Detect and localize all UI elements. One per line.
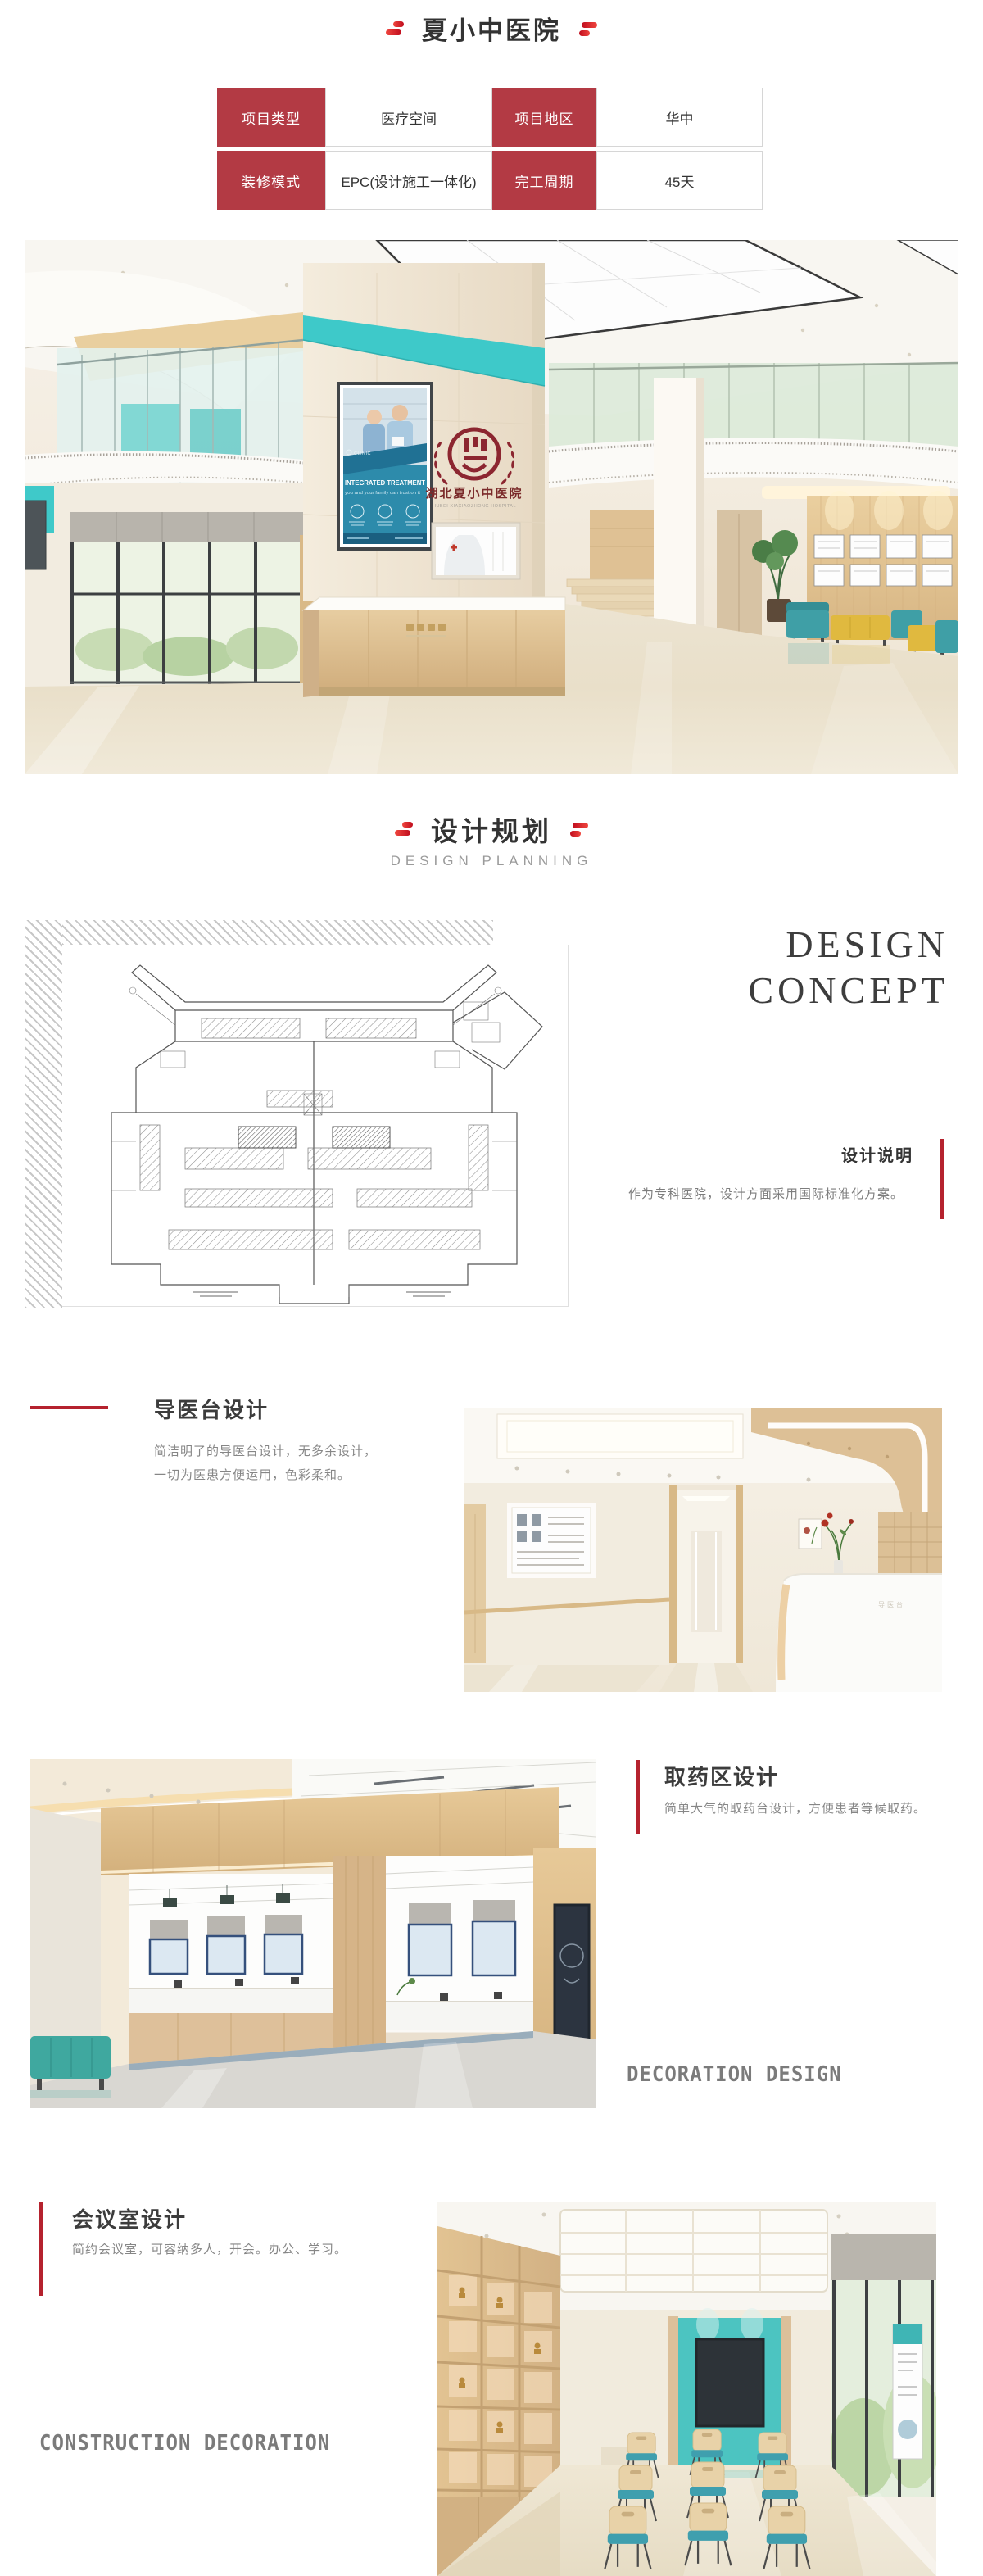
hatch-band-left [25,920,62,1308]
red-dash-icon [576,20,597,38]
concept-heading: 设计说明 [668,1142,913,1166]
table-label: 项目地区 [492,88,596,147]
table-value: 45天 [596,151,763,210]
poster-title: INTEGRATED TREATMENT [345,479,425,487]
floor-plan-image [62,945,569,1307]
planning-title: 设计规划 [431,810,552,849]
poster-subtitle: you and your family can trust on it [345,491,421,496]
red-accent-line [636,1760,640,1834]
planning-subtitle: DESIGN PLANNING [0,853,983,869]
guide-desc-line2: 一切为医患方便运用，色彩柔和。 [154,1463,498,1487]
pharmacy-image: 中药制作 [30,1759,596,2108]
red-accent-line [940,1139,944,1219]
table-value: 医疗空间 [325,88,492,147]
guide-desc: 简洁明了的导医台设计，无多余设计， 一切为医患方便运用，色彩柔和。 [154,1440,498,1487]
red-accent-line [39,2202,43,2296]
table-value: EPC(设计施工一体化) [325,151,492,210]
project-info-table: 项目类型 医疗空间 项目地区 华中 装修模式 EPC(设计施工一体化) 完工周期… [217,88,763,214]
logo-name-cn: 湖北夏小中医院 [425,486,523,501]
pharmacy-desc: 简单大气的取药台设计，方便患者等候取药。 [664,1797,976,1821]
red-accent-line [30,1406,108,1409]
table-row: 项目类型 医疗空间 项目地区 华中 [217,88,763,147]
lightbox-panel [432,523,520,579]
entrance-windows [25,483,321,687]
page-title: 夏小中医院 [422,10,561,47]
concept-desc: 作为专科医院，设计方面采用国际标准化方案。 [494,1185,904,1202]
hatch-band-top [25,920,493,945]
hero-poster: CLINIC INTEGRATED TREATMENT you and your… [338,383,432,549]
construction-decoration-watermark: CONSTRUCTION DECORATION [39,2430,330,2455]
table-label: 装修模式 [217,151,325,210]
hero-lobby-image: CLINIC INTEGRATED TREATMENT you and your… [25,240,958,774]
table-label: 项目类型 [217,88,325,147]
concept-en-title: DESIGN CONCEPT [621,922,949,1014]
red-dash-icon [567,820,588,838]
concept-en-line1: DESIGN [621,922,949,968]
guide-desk-label: 导医台 [878,1600,905,1608]
table-row: 装修模式 EPC(设计施工一体化) 完工周期 45天 [217,151,763,210]
red-dash-icon [395,820,416,838]
decoration-design-watermark: DECORATION DESIGN [627,2061,842,2086]
guide-desc-line1: 简洁明了的导医台设计，无多余设计， [154,1440,498,1463]
window-wall [831,2234,936,2497]
guide-desk-image: 导医台 [464,1408,942,1692]
logo-name-en: HUBEI XIAXIAOZHONG HOSPITAL [433,504,516,509]
white-column [654,378,704,635]
corridor [659,1485,753,1692]
meeting-heading: 会议室设计 [72,2203,187,2234]
meeting-room-image [437,2202,936,2576]
planning-title-row: 设计规划 [0,810,983,849]
concept-en-line2: CONCEPT [621,968,949,1014]
guide-heading: 导医台设计 [154,1394,269,1424]
red-dash-icon [386,20,407,38]
meeting-desc: 简约会议室，可容纳多人，开会。办公、学习。 [72,2238,424,2261]
info-board [464,1483,669,1665]
page-title-row: 夏小中医院 [0,10,983,47]
right-balcony [549,363,958,489]
reception-desk [303,597,565,697]
counter-left [129,1874,333,2013]
table-label: 完工周期 [492,151,596,210]
pharmacy-heading: 取药区设计 [664,1761,779,1791]
page: 夏小中医院 项目类型 医疗空间 项目地区 华中 装修模式 EPC(设计施工一体化… [0,0,983,2576]
table-value: 华中 [596,88,763,147]
poster-brand: CLINIC [354,451,371,456]
